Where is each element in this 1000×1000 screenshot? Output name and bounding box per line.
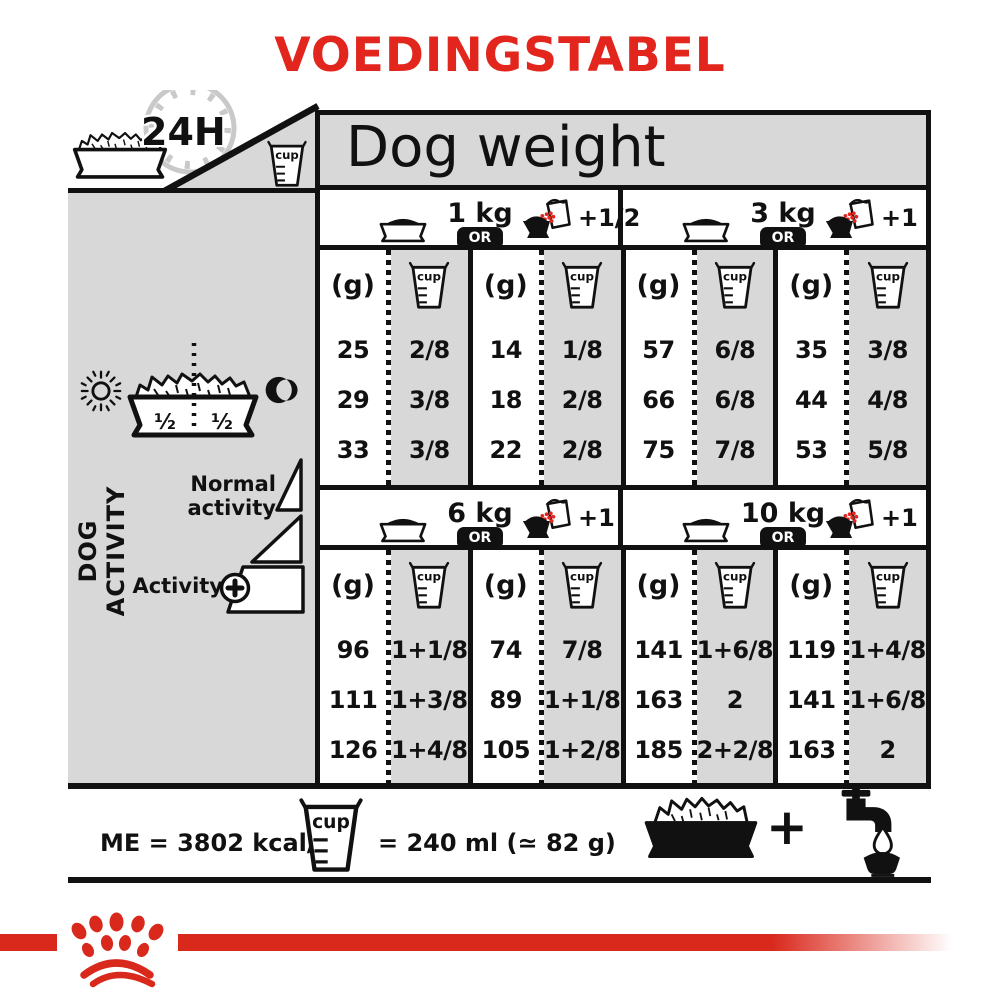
cup-value: 3/8 (391, 375, 468, 425)
grams-value: 29 (320, 375, 386, 425)
weight-band-row: 6 kg OR +1 10 kg OR +1 (320, 490, 926, 550)
serving-box: (g) 74 89 105 7/8 1+1/8 1+2/8 (473, 550, 626, 783)
grams-column: (g) 14 18 22 (473, 250, 539, 485)
grams-value: 163 (778, 725, 844, 775)
grams-value: 57 (626, 325, 692, 375)
dog-activity-axis-label: DOG ACTIVITY (74, 471, 130, 631)
food-bowl-icon (638, 792, 764, 872)
cup-value: 2 (849, 725, 926, 775)
grams-header: (g) (320, 550, 386, 620)
plus-circle-icon (222, 575, 249, 602)
red-bar-right (178, 934, 960, 951)
grams-header: (g) (778, 550, 844, 620)
serving-box: (g) 141 163 185 1+6/8 2 2+2/8 (626, 550, 779, 783)
cup-value: 7/8 (697, 425, 774, 475)
weight-band-6kg: 6 kg OR +1 (320, 490, 623, 545)
cup-icon (561, 261, 603, 310)
grams-column: (g) 35 44 53 (778, 250, 844, 485)
grams-value: 14 (473, 325, 539, 375)
serving-box: (g) 96 111 126 1+1/8 1+3/8 1+4/8 (320, 550, 473, 783)
cup-value: 6/8 (697, 325, 774, 375)
data-block-top: (g) 25 29 33 2/8 3/8 3/8 (320, 250, 926, 490)
grams-value: 22 (473, 425, 539, 475)
cup-value: 2+2/8 (697, 725, 774, 775)
or-badge: OR (457, 227, 503, 249)
weight-band-1kg: 1 kg OR +1/2 (320, 190, 623, 245)
serving-box: (g) 35 44 53 3/8 4/8 5/8 (778, 250, 926, 485)
cup-value: 1+4/8 (391, 725, 468, 775)
serving-box: (g) 14 18 22 1/8 2/8 2/8 (473, 250, 626, 485)
grams-header: (g) (778, 250, 844, 320)
data-block-bottom: (g) 96 111 126 1+1/8 1+3/8 1+4/8 (320, 550, 926, 783)
grams-value: 66 (626, 375, 692, 425)
grams-value: 163 (626, 675, 692, 725)
grams-header: (g) (626, 550, 692, 620)
grams-header: (g) (473, 550, 539, 620)
cup-value: 1/8 (544, 325, 621, 375)
serving-box: (g) 57 66 75 6/8 6/8 7/8 (626, 250, 779, 485)
cup-icon (714, 261, 756, 310)
cup-icon (714, 561, 756, 610)
cup-column: 6/8 6/8 7/8 (697, 250, 774, 485)
cup-icon (408, 561, 450, 610)
cup-value: 1+2/8 (544, 725, 621, 775)
moon-icon (264, 372, 300, 408)
grams-value: 96 (320, 625, 386, 675)
cup-column: 1+6/8 2 2+2/8 (697, 550, 774, 783)
weight-band-3kg: 3 kg OR +1 (623, 190, 926, 245)
cup-value: 2/8 (391, 325, 468, 375)
grams-column: (g) 119 141 163 (778, 550, 844, 783)
grams-value: 44 (778, 375, 844, 425)
cup-value: 3/8 (849, 325, 926, 375)
grams-value: 111 (320, 675, 386, 725)
half-portion-label: ½ (211, 410, 233, 434)
grams-value: 126 (320, 725, 386, 775)
grams-column: (g) 25 29 33 (320, 250, 386, 485)
activity-ramp-icon (208, 455, 308, 617)
grams-header: (g) (473, 250, 539, 320)
red-bar-left (0, 934, 57, 951)
cup-value: 1+3/8 (391, 675, 468, 725)
serving-box: (g) 119 141 163 1+4/8 1+6/8 2 (778, 550, 926, 783)
cup-value: 2/8 (544, 425, 621, 475)
grams-value: 89 (473, 675, 539, 725)
grams-value: 75 (626, 425, 692, 475)
or-badge: OR (760, 527, 806, 549)
grams-value: 18 (473, 375, 539, 425)
cup-value: 2 (697, 675, 774, 725)
pouch-pour-icon (825, 198, 881, 244)
grams-value: 141 (778, 675, 844, 725)
cup-icon (298, 797, 364, 874)
cup-value: 1+6/8 (697, 625, 774, 675)
cup-equivalence-label: = 240 ml (≃ 82 g) (378, 829, 616, 857)
water-tap-icon (812, 784, 900, 878)
cup-icon (408, 261, 450, 310)
divider-line (68, 783, 931, 789)
cup-value: 1+1/8 (544, 675, 621, 725)
feeding-table: Dog weight 1 kg OR +1/2 3 kg OR +1 (g) (315, 110, 931, 788)
cup-column: 3/8 4/8 5/8 (849, 250, 926, 485)
grams-value: 35 (778, 325, 844, 375)
grams-value: 25 (320, 325, 386, 375)
cup-value: 4/8 (849, 375, 926, 425)
extra-portion-label: +1 (881, 204, 918, 232)
cup-column: 1/8 2/8 2/8 (544, 250, 621, 485)
half-split-bowl-icon: ½ ½ (118, 341, 268, 451)
serving-box: (g) 25 29 33 2/8 3/8 3/8 (320, 250, 473, 485)
or-badge: OR (457, 527, 503, 549)
pouch-pour-icon (522, 198, 578, 244)
grams-value: 185 (626, 725, 692, 775)
cup-icon (867, 561, 909, 610)
feeding-table-page: VOEDINGSTABEL 24H ½ ½ (0, 0, 1000, 1000)
grams-column: (g) 74 89 105 (473, 550, 539, 783)
cup-value: 3/8 (391, 425, 468, 475)
extra-portion-label: +1 (881, 504, 918, 532)
grams-header: (g) (320, 250, 386, 320)
crown-paw-logo (60, 900, 175, 990)
grams-value: 74 (473, 625, 539, 675)
extra-portion-label: +1 (578, 504, 615, 532)
cup-column: 7/8 1+1/8 1+2/8 (544, 550, 621, 783)
pouch-pour-icon (825, 498, 881, 544)
grams-header: (g) (626, 250, 692, 320)
grams-value: 141 (626, 625, 692, 675)
cup-value: 2/8 (544, 375, 621, 425)
dog-weight-header: Dog weight (320, 115, 926, 190)
half-portion-label: ½ (154, 410, 176, 434)
cup-icon (561, 561, 603, 610)
grams-column: (g) 57 66 75 (626, 250, 692, 485)
cup-value: 6/8 (697, 375, 774, 425)
divider-line (68, 877, 931, 883)
cup-column: 2/8 3/8 3/8 (391, 250, 468, 485)
cup-column: 1+1/8 1+3/8 1+4/8 (391, 550, 468, 783)
weight-band-10kg: 10 kg OR +1 (623, 490, 926, 545)
cup-value: 1+4/8 (849, 625, 926, 675)
cup-value: 7/8 (544, 625, 621, 675)
grams-column: (g) 141 163 185 (626, 550, 692, 783)
or-badge: OR (760, 227, 806, 249)
cup-icon (867, 261, 909, 310)
plus-sign: + (766, 798, 808, 856)
cup-value: 1+6/8 (849, 675, 926, 725)
weight-band-row: 1 kg OR +1/2 3 kg OR +1 (320, 190, 926, 250)
grams-value: 105 (473, 725, 539, 775)
grams-value: 53 (778, 425, 844, 475)
cup-column: 1+4/8 1+6/8 2 (849, 550, 926, 783)
grams-value: 33 (320, 425, 386, 475)
cup-value: 1+1/8 (391, 625, 468, 675)
page-title: VOEDINGSTABEL (0, 28, 1000, 83)
cup-value: 5/8 (849, 425, 926, 475)
grams-value: 119 (778, 625, 844, 675)
grams-column: (g) 96 111 126 (320, 550, 386, 783)
pouch-pour-icon (522, 498, 578, 544)
dog-activity-panel: ½ ½ DOG ACTIVITY Normal activity Activit… (68, 193, 315, 783)
